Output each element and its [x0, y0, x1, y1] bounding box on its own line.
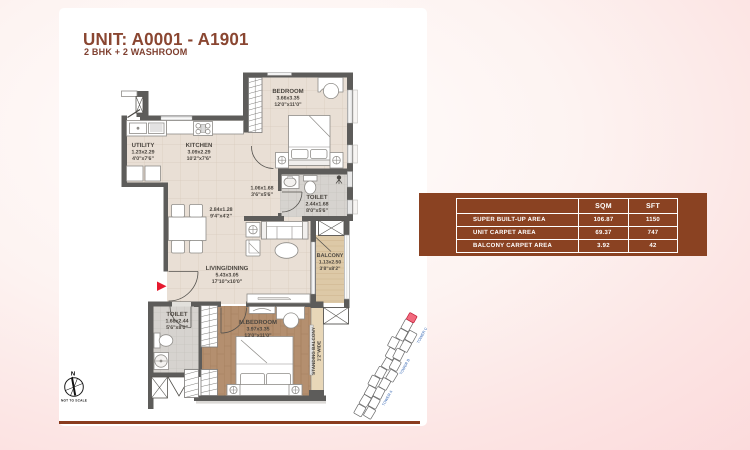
svg-text:TOILET: TOILET	[306, 194, 328, 201]
svg-text:3.97x3.35: 3.97x3.35	[246, 327, 269, 333]
svg-text:3.09x2.29: 3.09x2.29	[187, 150, 210, 156]
svg-text:3'6"x5'6": 3'6"x5'6"	[251, 192, 273, 198]
svg-text:UTILITY: UTILITY	[132, 142, 155, 149]
svg-text:12'0"x11'0": 12'0"x11'0"	[274, 102, 302, 108]
svg-text:9'4"x4'2": 9'4"x4'2"	[210, 214, 232, 220]
svg-text:5'6"x8'0": 5'6"x8'0"	[166, 325, 188, 331]
svg-text:4'0"x7'6": 4'0"x7'6"	[132, 156, 154, 162]
svg-text:NOT TO SCALE: NOT TO SCALE	[61, 399, 87, 403]
svg-text:3'8"x8'2": 3'8"x8'2"	[319, 266, 341, 272]
svg-text:KITCHEN: KITCHEN	[186, 142, 213, 149]
svg-text:1.23x2.29: 1.23x2.29	[131, 150, 154, 156]
svg-text:8'0"x5'6": 8'0"x5'6"	[306, 208, 328, 214]
svg-text:13'0"x11'0": 13'0"x11'0"	[244, 333, 272, 339]
svg-text:10'2"x7'6": 10'2"x7'6"	[187, 156, 212, 162]
svg-text:N: N	[71, 371, 75, 378]
svg-text:BALCONY: BALCONY	[317, 253, 344, 259]
svg-text:TOWER C: TOWER C	[416, 326, 429, 344]
svg-text:1'2"WIDE: 1'2"WIDE	[316, 341, 321, 361]
svg-text:STANDING BALCONY: STANDING BALCONY	[311, 327, 316, 375]
svg-text:TOILET: TOILET	[166, 311, 188, 318]
svg-text:M.BEDROOM: M.BEDROOM	[239, 319, 277, 326]
svg-text:1.68x2.44: 1.68x2.44	[165, 319, 188, 325]
svg-text:17'10"x10'0": 17'10"x10'0"	[212, 279, 243, 285]
svg-text:5.43x3.05: 5.43x3.05	[215, 273, 238, 279]
svg-text:3.66x3.35: 3.66x3.35	[276, 96, 299, 102]
svg-text:1.13x2.50: 1.13x2.50	[319, 260, 341, 266]
svg-text:BEDROOM: BEDROOM	[272, 88, 303, 95]
svg-text:1.06x1.68: 1.06x1.68	[250, 186, 273, 192]
svg-text:2.84x1.28: 2.84x1.28	[209, 207, 232, 213]
svg-text:2.44x1.68: 2.44x1.68	[305, 202, 328, 208]
svg-text:LIVING/DINING: LIVING/DINING	[206, 265, 249, 272]
